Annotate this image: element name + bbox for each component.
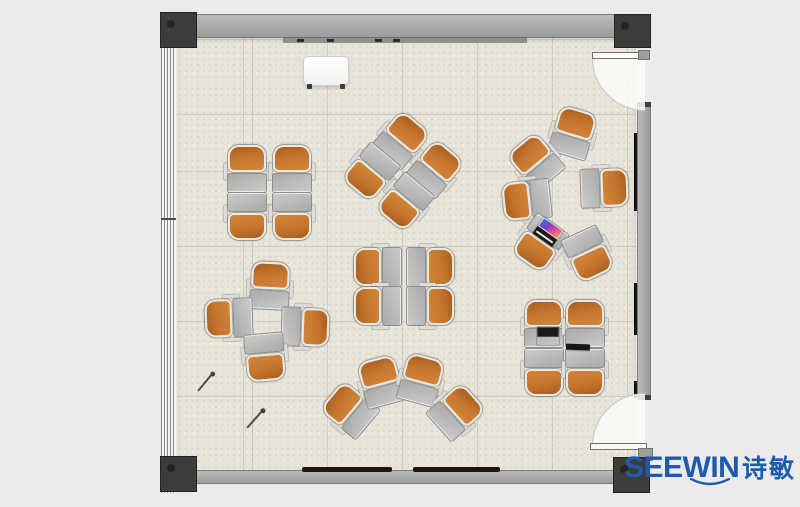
laptop-screen (537, 327, 559, 337)
wall-trim (413, 467, 500, 472)
door-hinge (638, 50, 650, 60)
chair-seat (427, 287, 454, 325)
chair-seat (566, 369, 604, 396)
desk-chair-unit (226, 145, 268, 193)
laptop-open (537, 327, 559, 345)
board-marker (393, 39, 400, 42)
wall-edge-dash (634, 133, 637, 211)
tablet-desk (382, 286, 402, 326)
laptop-keyboard (537, 337, 559, 345)
tablet-desk (529, 178, 553, 220)
wall-top (177, 14, 636, 38)
desk-chair-unit (354, 246, 402, 288)
wall-mounted-board (283, 37, 527, 43)
tablet-desk (272, 192, 312, 212)
chair-seat (228, 213, 266, 240)
tablet-desk (272, 173, 312, 193)
chair-seat (427, 248, 454, 286)
desk-chair-unit (271, 192, 313, 240)
desk-chair-unit (406, 285, 454, 327)
chair-seat (525, 300, 563, 327)
desk-chair-unit (271, 145, 313, 193)
board-marker (327, 39, 334, 42)
chair-seat (228, 145, 266, 172)
desk-chair-unit (523, 348, 565, 396)
board-marker (297, 39, 304, 42)
chair-seat (501, 181, 532, 222)
chair-seat (600, 168, 628, 207)
window-mullion-tick (161, 218, 176, 220)
wall-bottom (177, 470, 636, 484)
structural-column (160, 12, 197, 48)
chair-seat (273, 145, 311, 172)
chair-seat (566, 300, 604, 327)
wall-trim (302, 467, 392, 472)
chair-seat (246, 352, 286, 382)
logo-swoosh-icon (690, 478, 730, 488)
tablet (566, 344, 590, 351)
brand-cjk: 诗敏 (742, 454, 796, 484)
desk-chair-unit (280, 305, 329, 349)
structural-column (160, 456, 197, 492)
desk-chair-unit (564, 348, 606, 396)
wall-edge-dash (634, 283, 637, 335)
desk-chair-unit (242, 331, 288, 382)
structural-column (614, 14, 651, 48)
desk-chair-unit (579, 166, 628, 210)
chair-seat (273, 213, 311, 240)
tablet-desk (227, 192, 267, 212)
tablet-desk (524, 348, 564, 368)
desk-chair-unit (204, 296, 253, 340)
desk-chair-unit (354, 285, 402, 327)
brand-logo: SEEWIN 诗敏 (624, 452, 796, 492)
floorplan-stage: SEEWIN 诗敏 (0, 0, 800, 507)
chair-seat (204, 299, 232, 338)
tablet-desk (565, 348, 605, 368)
window-wall (161, 14, 176, 493)
desk-chair-unit (406, 246, 454, 288)
desk-chair-unit (564, 300, 606, 348)
tablet-desk (227, 173, 267, 193)
flipchart-whiteboard (303, 56, 349, 86)
tablet-desk (579, 168, 600, 209)
tablet-desk (406, 247, 426, 287)
chair-seat (301, 308, 329, 347)
desk-chair-unit (248, 261, 292, 311)
chair-seat (354, 248, 381, 286)
tablet-desk (406, 286, 426, 326)
chair-seat (354, 287, 381, 325)
tablet-desk (232, 297, 253, 338)
board-marker (375, 39, 382, 42)
chair-seat (251, 261, 290, 290)
tablet-desk (243, 331, 285, 354)
tablet-desk (382, 247, 402, 287)
wall-right (637, 102, 651, 400)
chair-seat (525, 369, 563, 396)
desk-chair-unit (226, 192, 268, 240)
